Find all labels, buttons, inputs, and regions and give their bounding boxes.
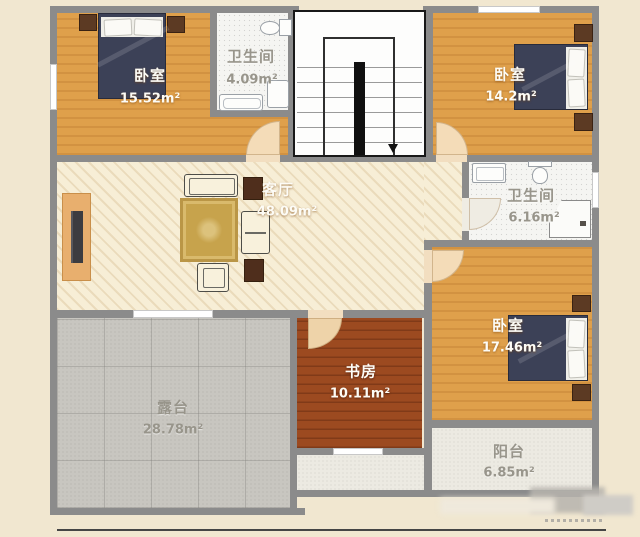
- balcony-label: 阳台: [493, 445, 525, 460]
- nightstand-icon: [572, 384, 591, 401]
- nightstand-icon: [572, 295, 591, 312]
- nightstand-icon: [79, 14, 97, 31]
- utility-room-floor: [297, 455, 424, 490]
- bedroom-top-right-area: 14.2m²: [485, 91, 536, 104]
- sink-icon: [472, 163, 506, 183]
- rug-icon: [180, 198, 238, 262]
- bed-icon: [98, 13, 166, 99]
- wall-segment: [210, 110, 297, 117]
- living-room-label: 客厅: [262, 183, 294, 198]
- living-room-area: 48.09m²: [257, 206, 317, 219]
- toilet-icon: [279, 19, 292, 36]
- wall-segment: [50, 6, 299, 13]
- side-table-icon: [244, 259, 264, 282]
- window-icon: [133, 310, 213, 318]
- study-area: 10.11m²: [330, 388, 390, 401]
- bathroom-top-area: 4.09m²: [226, 74, 277, 87]
- nightstand-icon: [574, 113, 593, 131]
- bedroom-bottom-right-area: 17.46m²: [482, 342, 542, 355]
- bathroom-right-area: 6.16m²: [508, 212, 559, 225]
- study-label: 书房: [345, 365, 377, 380]
- door-opening: [462, 198, 469, 231]
- bedroom-bottom-right-label: 卧室: [492, 319, 524, 334]
- stair-rail-bar: [354, 62, 365, 155]
- wall-segment: [430, 240, 599, 247]
- living-room-floor-east: [424, 162, 462, 240]
- terrace-label: 露台: [157, 401, 189, 416]
- bottom-rule: [57, 529, 606, 531]
- wall-segment: [290, 310, 297, 515]
- wall-segment: [210, 6, 217, 117]
- wall-segment: [50, 310, 432, 318]
- door-opening: [246, 155, 280, 162]
- bedroom-top-left-area: 15.52m²: [120, 93, 180, 106]
- watermark-marks: [545, 519, 605, 522]
- nightstand-icon: [574, 24, 593, 42]
- bathtub-icon: [219, 94, 263, 111]
- bedroom-top-left-label: 卧室: [134, 69, 166, 84]
- staircase-icon: [293, 10, 426, 157]
- watermark-smudge: [583, 495, 633, 515]
- door-opening: [308, 310, 343, 318]
- nightstand-icon: [167, 16, 185, 33]
- window-icon: [333, 448, 383, 455]
- armchair-icon: [197, 263, 229, 292]
- door-opening: [436, 155, 467, 162]
- door-opening: [424, 250, 432, 283]
- wall-segment: [424, 420, 599, 428]
- toilet-icon: [532, 167, 548, 184]
- bathroom-right-label: 卫生间: [507, 189, 555, 204]
- window-icon: [478, 6, 540, 13]
- floor-plan: 卧室 15.52m² 卫生间 4.09m² 卧室 14.2m² 客厅 48.09…: [0, 0, 640, 537]
- balcony-area: 6.85m²: [483, 467, 534, 480]
- window-icon: [50, 64, 57, 110]
- watermark-smudge: [440, 498, 555, 514]
- tv-icon: [71, 211, 83, 263]
- window-icon: [592, 172, 599, 208]
- side-table-icon: [243, 177, 263, 200]
- bedroom-top-right-label: 卧室: [494, 68, 526, 83]
- toilet-icon: [260, 21, 280, 35]
- wall-segment: [50, 508, 305, 515]
- terrace-area: 28.78m²: [143, 424, 203, 437]
- bathroom-top-label: 卫生间: [227, 50, 275, 65]
- stair-direction-arrow: [388, 144, 398, 153]
- sofa-icon: [184, 174, 238, 197]
